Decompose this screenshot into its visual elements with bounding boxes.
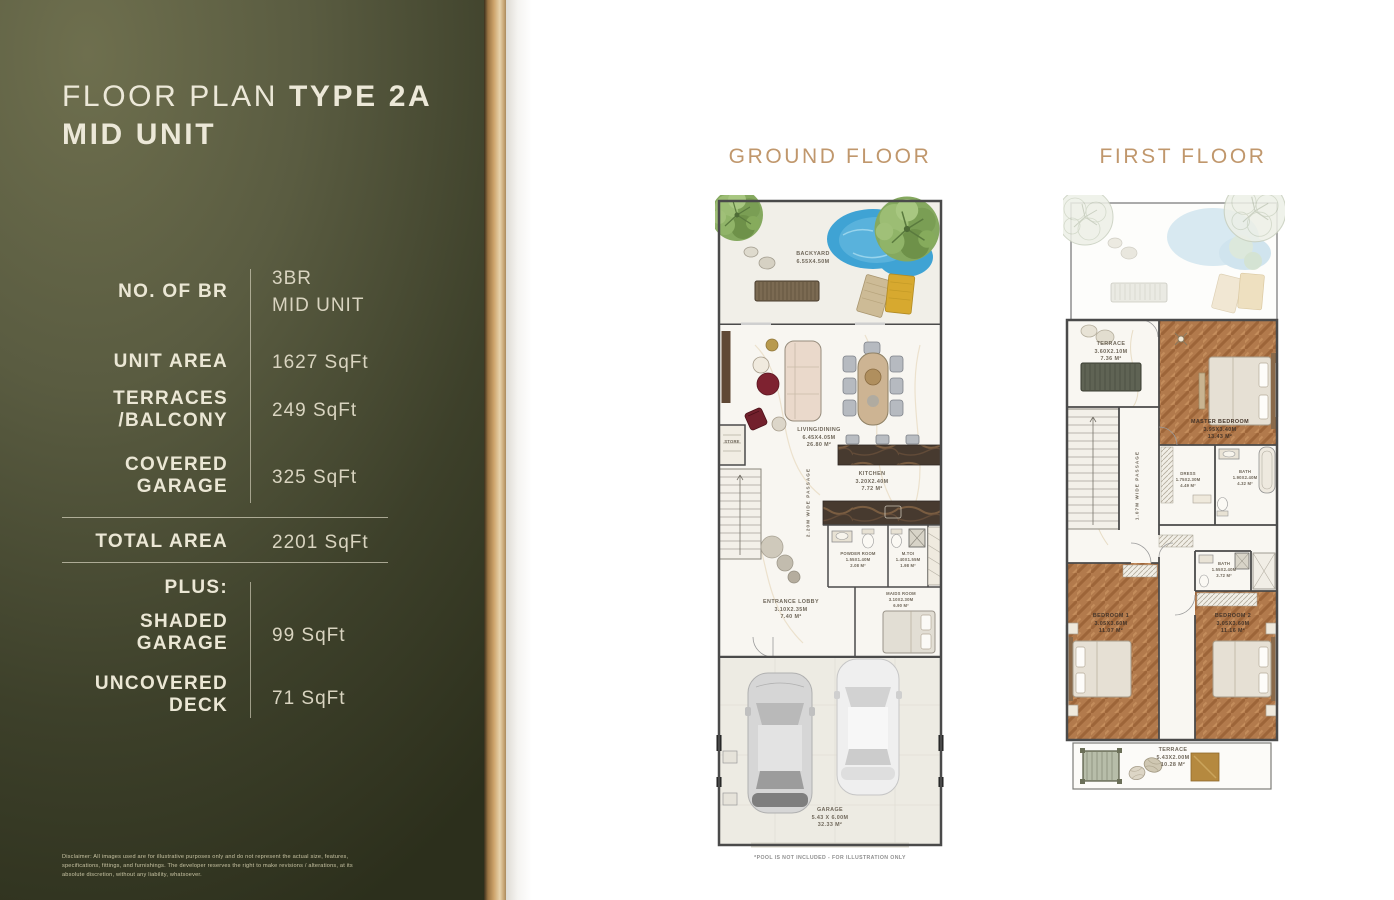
ground-floor-plan: BACKYARD 6.55x4.50m LIVING/DINING 6.45x4… [715,195,945,850]
column-divider [250,582,251,718]
gold-mat [1191,753,1219,781]
garden-bench [755,281,819,301]
spec-value-total-area: 2201 SqFt [272,529,369,556]
terrace-sofa [1080,748,1122,784]
wardrobe [1123,565,1157,577]
ground-floor-plan-drawing [715,195,945,850]
toilet [862,529,874,548]
spec-value-shaded-garage: 99 SqFt [272,622,346,649]
page-title-line1: FLOOR PLAN TYPE 2A [62,78,432,116]
divider-line [62,517,388,518]
first-floor-plan: TERRACE 3.60x2.10m 7.36 m² MASTER BEDROO… [1063,195,1285,800]
closet [1159,535,1193,547]
first-floor-title: FIRST FLOOR [1063,145,1303,169]
column-divider [250,269,251,503]
plans-area: GROUND FLOOR FIRST FLOOR [506,0,1394,900]
toilet [891,529,902,548]
title-regular: FLOOR PLAN [62,80,278,113]
car [834,659,902,795]
spec-value-br: 3BR MID UNIT [272,265,364,319]
spec-value-unit-area: 1627 SqFt [272,349,369,376]
living-level [719,325,941,657]
side-table [772,417,786,431]
spec-label-uncovered-deck: UNCOVERED DECK [60,673,228,717]
wardrobe [1197,593,1257,606]
spec-label-shaded-garage: SHADED GARAGE [60,611,228,655]
spec-label-covered-garage: COVERED GARAGE [60,454,228,498]
first-floor-rooms [1066,320,1279,740]
spec-label-total-area: TOTAL AREA [60,531,228,553]
store-room [719,425,745,465]
ghost-backyard [1063,195,1285,320]
spec-label-plus: PLUS: [60,577,228,599]
spec-value-uncovered-deck: 71 SqFt [272,685,346,712]
title-bold: TYPE 2A [289,80,432,113]
first-floor-plan-drawing [1063,195,1285,800]
gold-accent-stripe [484,0,506,900]
pouf [753,357,769,373]
pool-footnote: *POOL IS NOT INCLUDED - FOR ILLUSTRATION… [715,855,945,861]
spec-label-terraces: TERRACES /BALCONY [60,388,228,432]
backyard-area [715,195,941,328]
wardrobe [1161,447,1173,503]
closet [928,527,941,585]
maids-bed [883,611,935,653]
bottom-terrace [1073,743,1271,789]
stairs [719,469,761,559]
ottoman [757,373,779,395]
terrace-bench [1081,363,1141,391]
spec-value-covered-garage: 325 SqFt [272,464,357,491]
stairs [1067,409,1119,529]
divider-line [62,562,388,563]
pouf [766,339,778,351]
shower [909,529,925,547]
lounge-mat [885,274,915,315]
tree [875,197,940,262]
closet [1253,553,1275,589]
spec-panel: FLOOR PLAN TYPE 2A MID UNIT NO. OF BR 3B… [0,0,484,900]
decor-rug [777,555,793,571]
page-title-line2: MID UNIT [62,116,432,154]
master-bed [1199,353,1277,429]
decor-rug [788,571,800,583]
spec-label-br: NO. OF BR [60,281,228,303]
car [745,673,815,813]
garage-area [717,657,944,848]
disclaimer-text: Disclaimer: All images used are for illu… [62,853,354,880]
decor-rug [761,536,783,558]
sofa [785,341,821,421]
tv-console [722,331,731,403]
dresser [1193,495,1211,503]
spec-value-terraces: 249 SqFt [272,397,357,424]
page-title: FLOOR PLAN TYPE 2A MID UNIT [62,78,432,154]
spec-label-unit-area: UNIT AREA [60,351,228,373]
ground-floor-title: GROUND FLOOR [710,145,950,169]
brochure-page: FLOOR PLAN TYPE 2A MID UNIT NO. OF BR 3B… [0,0,1394,900]
